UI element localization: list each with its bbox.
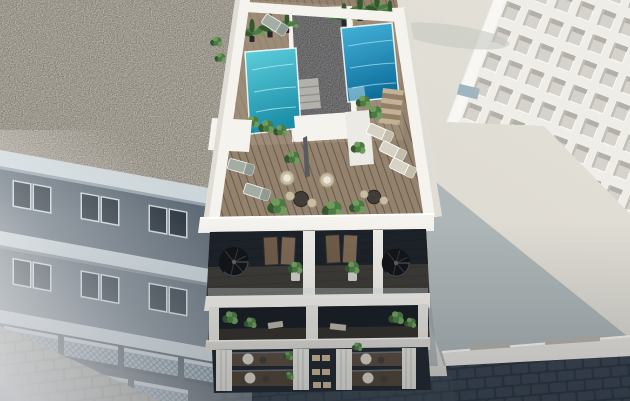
architectural-render [0, 0, 630, 401]
vignette [0, 0, 630, 401]
render-canvas [0, 0, 630, 401]
